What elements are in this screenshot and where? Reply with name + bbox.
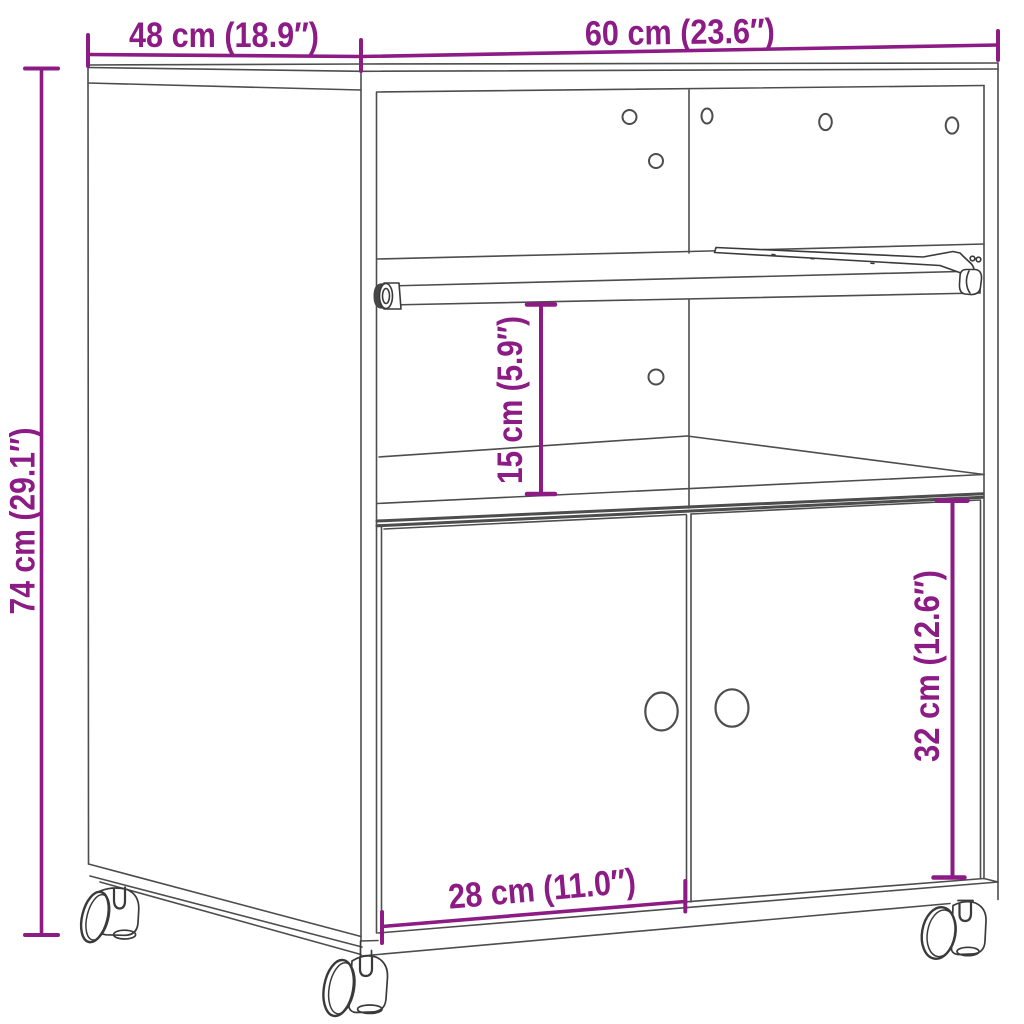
svg-text:32 cm (12.6″): 32 cm (12.6″): [908, 570, 947, 762]
svg-text:15 cm (5.9″): 15 cm (5.9″): [491, 316, 530, 484]
svg-text:74 cm (29.1″): 74 cm (29.1″): [4, 428, 43, 615]
svg-text:60 cm (23.6″): 60 cm (23.6″): [585, 12, 776, 54]
svg-text:48 cm (18.9″): 48 cm (18.9″): [129, 16, 319, 55]
